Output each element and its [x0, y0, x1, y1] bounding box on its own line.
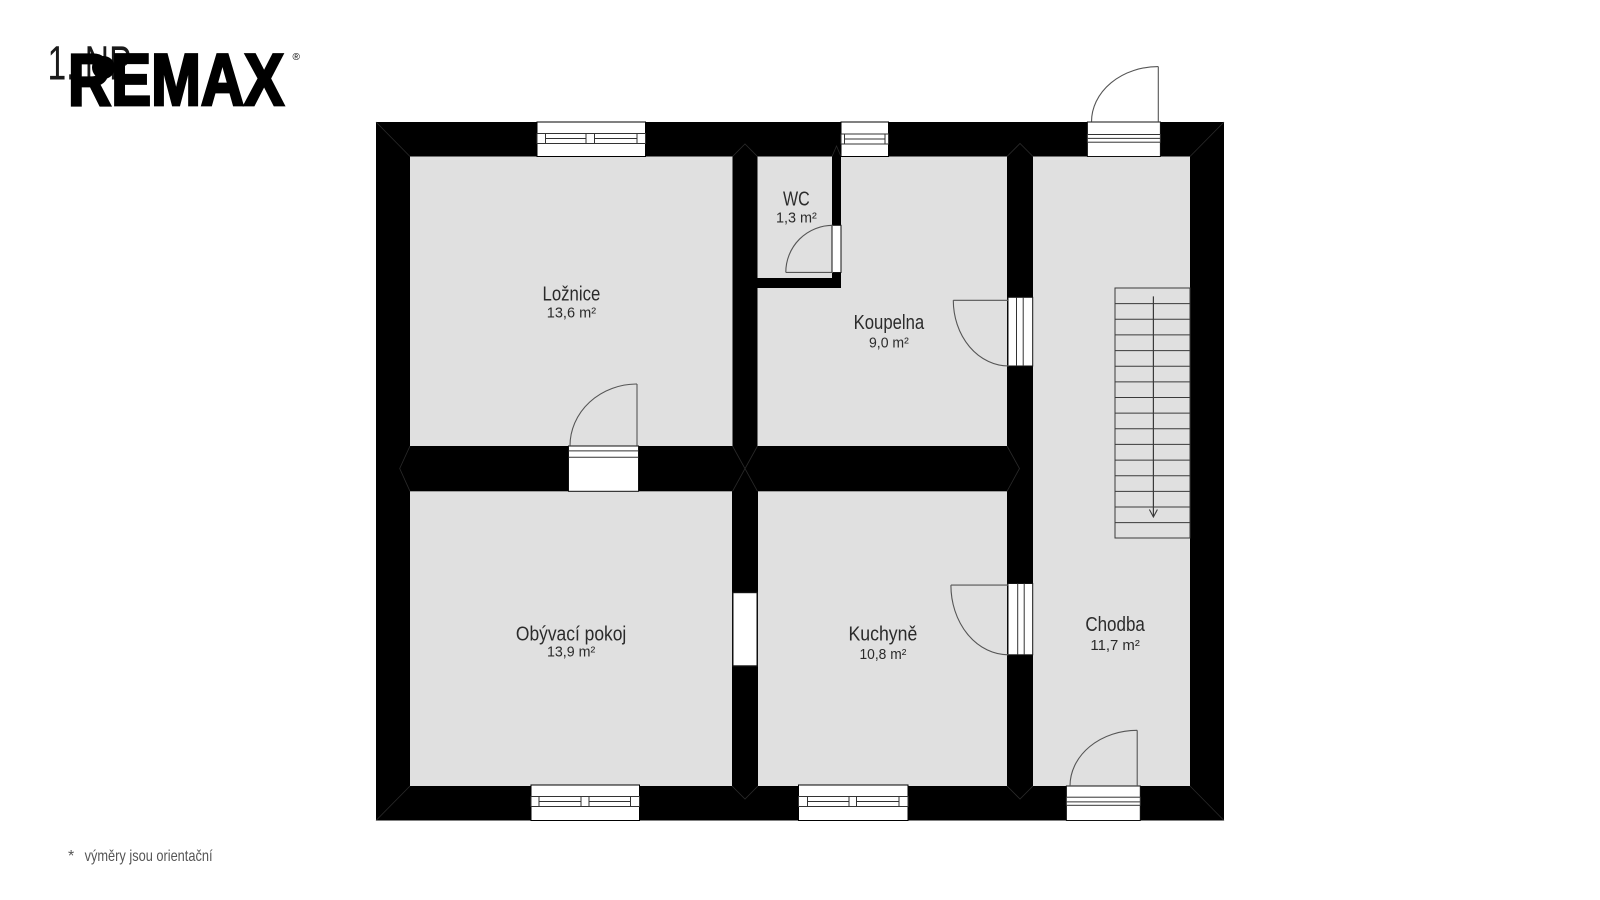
svg-text:13,9 m²: 13,9 m²	[547, 644, 595, 660]
svg-text:Obývací pokoj: Obývací pokoj	[516, 623, 626, 645]
svg-text:Ložnice: Ložnice	[543, 283, 601, 305]
svg-text:Kuchyně: Kuchyně	[849, 623, 918, 645]
svg-text:REMAX: REMAX	[68, 40, 284, 121]
svg-text:WC: WC	[783, 188, 810, 210]
svg-text:9,0 m²: 9,0 m²	[869, 336, 909, 352]
svg-text:výměry jsou orientační: výměry jsou orientační	[85, 848, 213, 866]
svg-text:13,6 m²: 13,6 m²	[547, 306, 596, 322]
svg-text:Koupelna: Koupelna	[854, 312, 925, 334]
svg-text:11,7 m²: 11,7 m²	[1090, 638, 1140, 654]
svg-text:Chodba: Chodba	[1085, 614, 1145, 636]
svg-text:®: ®	[293, 52, 301, 63]
svg-text:*: *	[68, 848, 74, 865]
svg-text:1,3 m²: 1,3 m²	[776, 210, 817, 226]
svg-text:10,8 m²: 10,8 m²	[860, 647, 907, 663]
